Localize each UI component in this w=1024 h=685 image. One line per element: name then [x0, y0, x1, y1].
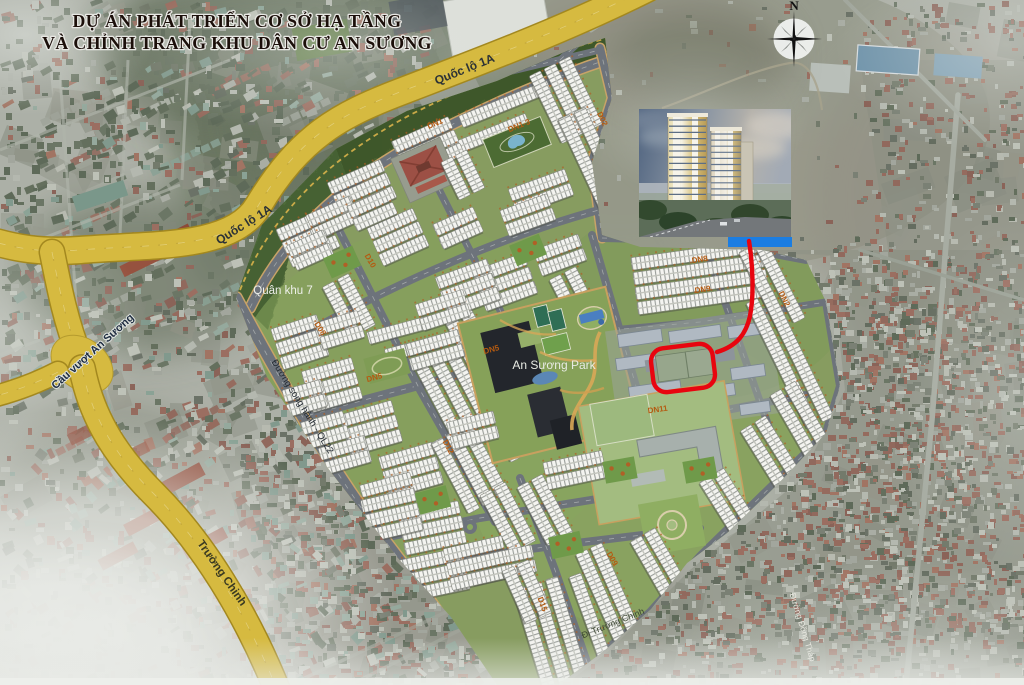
svg-text:An Sương Park: An Sương Park — [512, 358, 596, 372]
svg-text:VÀ CHỈNH TRANG KHU DÂN CƯ AN S: VÀ CHỈNH TRANG KHU DÂN CƯ AN SƯƠNG — [42, 32, 432, 53]
svg-text:DỰ ÁN PHÁT TRIỂN CƠ SỞ HẠ TẦNG: DỰ ÁN PHÁT TRIỂN CƠ SỞ HẠ TẦNG — [73, 10, 402, 31]
svg-text:Quân khu 7: Quân khu 7 — [253, 285, 312, 297]
svg-text:N: N — [789, 0, 799, 13]
